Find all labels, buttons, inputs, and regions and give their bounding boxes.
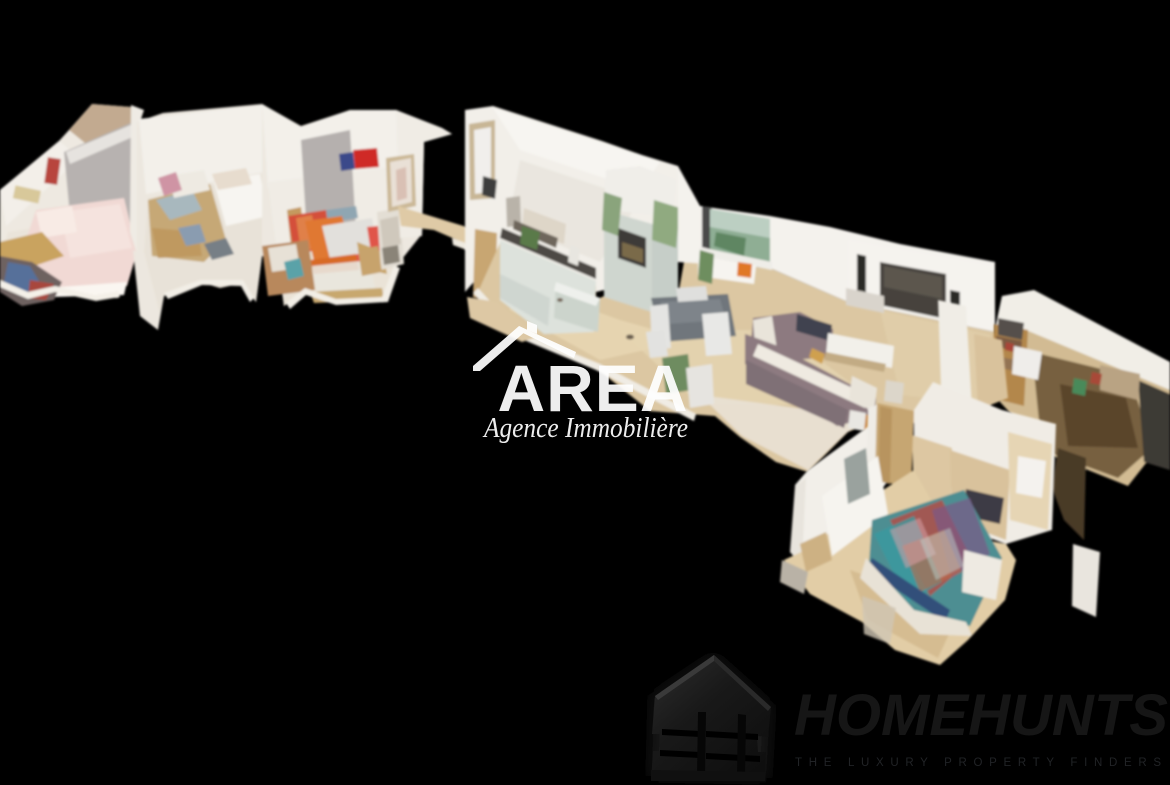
svg-text:Agence Immobilière: Agence Immobilière <box>482 413 688 444</box>
svg-text:THE LUXURY PROPERTY FINDERS: THE LUXURY PROPERTY FINDERS <box>795 757 1165 769</box>
svg-text:HOMEHUNTS: HOMEHUNTS <box>794 683 1168 748</box>
